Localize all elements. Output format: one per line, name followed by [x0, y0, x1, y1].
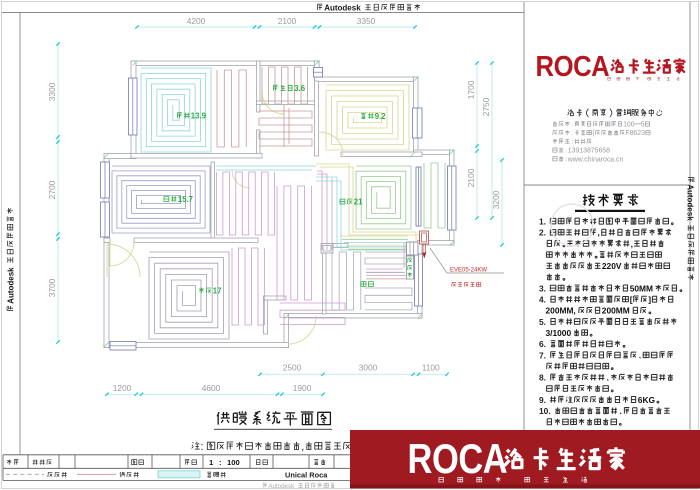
svg-text:Autodesk: Autodesk: [324, 4, 361, 13]
svg-text:2.: 2.: [539, 228, 546, 238]
svg-text:8.: 8.: [539, 373, 546, 383]
svg-text::: :: [219, 458, 222, 467]
svg-text:21: 21: [354, 198, 363, 207]
svg-text:1100: 1100: [422, 363, 440, 373]
svg-text:5.: 5.: [539, 317, 546, 327]
svg-text:,: ,: [301, 441, 304, 453]
svg-text::: :: [201, 441, 204, 453]
svg-text:6KG: 6KG: [638, 395, 655, 405]
svg-text:3200: 3200: [491, 190, 501, 209]
svg-text:F8623: F8623: [625, 130, 645, 137]
svg-text:2700: 2700: [47, 180, 57, 199]
svg-text:4200: 4200: [187, 16, 206, 26]
svg-text:EVE05-24KW: EVE05-24KW: [450, 268, 487, 274]
svg-text:3700: 3700: [47, 278, 57, 297]
svg-text:ROCA: ROCA: [408, 436, 508, 483]
svg-text:100: 100: [227, 458, 240, 467]
svg-text:,: ,: [598, 228, 600, 238]
svg-text:17: 17: [213, 287, 222, 296]
svg-text:5: 5: [641, 122, 645, 129]
svg-text:50MM: 50MM: [630, 283, 653, 293]
svg-text:200MM,: 200MM,: [546, 306, 576, 316]
svg-text:2500: 2500: [283, 363, 302, 373]
svg-text:www.chinaroca.cn: www.chinaroca.cn: [567, 156, 624, 163]
svg-text:]: ]: [648, 295, 651, 305]
svg-text:,: ,: [631, 239, 633, 249]
svg-text:4600: 4600: [202, 383, 221, 393]
svg-text:1700: 1700: [466, 80, 476, 99]
svg-text:1200: 1200: [113, 383, 132, 393]
svg-text:3/1000: 3/1000: [546, 328, 572, 338]
svg-text:Autodesk: Autodesk: [268, 483, 295, 490]
svg-text:4.: 4.: [539, 295, 546, 305]
svg-text:3300: 3300: [47, 82, 57, 101]
svg-text:13.9: 13.9: [191, 112, 207, 121]
svg-text:Autodesk: Autodesk: [686, 184, 695, 221]
svg-text:3000: 3000: [359, 363, 378, 373]
svg-text:220V: 220V: [602, 261, 622, 271]
svg-text:100: 100: [623, 122, 635, 129]
svg-text:Unical Roca: Unical Roca: [285, 471, 328, 480]
svg-text:2750: 2750: [481, 97, 491, 116]
svg-text:10.: 10.: [539, 406, 551, 416]
svg-text:3.6: 3.6: [294, 84, 306, 93]
svg-text:3350: 3350: [357, 16, 376, 26]
svg-text:1.: 1.: [539, 217, 546, 227]
svg-text:1900: 1900: [293, 383, 312, 393]
svg-text:3.: 3.: [539, 283, 546, 293]
svg-text:2100: 2100: [278, 16, 297, 26]
svg-text:2100: 2100: [466, 168, 476, 187]
svg-text:200MM: 200MM: [602, 306, 630, 316]
svg-text:15.7: 15.7: [178, 195, 193, 204]
svg-text:9.: 9.: [539, 395, 546, 405]
svg-text:7.: 7.: [539, 350, 546, 360]
svg-text:6.: 6.: [539, 339, 546, 349]
svg-text:[: [: [630, 295, 633, 305]
svg-text:9.2: 9.2: [375, 112, 387, 121]
svg-text:Autodesk: Autodesk: [7, 267, 16, 304]
svg-text:ROCA: ROCA: [536, 50, 610, 83]
svg-text:13913875658: 13913875658: [568, 148, 610, 155]
